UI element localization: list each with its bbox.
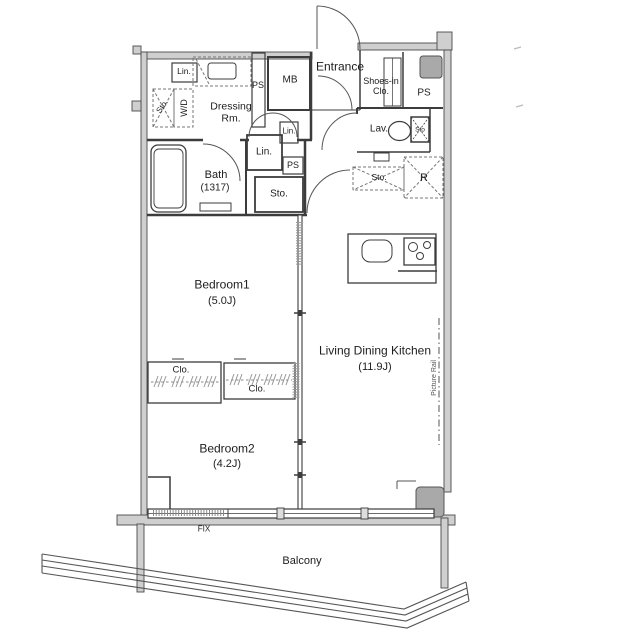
label-storage-toilet: Sto bbox=[415, 126, 425, 133]
label-shoes-in-closet: Shoes-in Clo. bbox=[359, 76, 403, 96]
stove bbox=[404, 238, 435, 265]
floorplan: Lin. PS MB Entrance Shoes-in Clo. PS Sto… bbox=[0, 0, 640, 639]
label-fix-window: FIX bbox=[198, 526, 210, 535]
label-linen-dressing: Lin. bbox=[177, 67, 191, 77]
label-bedroom1: Bedroom1 bbox=[194, 278, 249, 291]
hall-door-arc bbox=[318, 76, 352, 110]
vanity-counter bbox=[193, 57, 251, 86]
bathtub bbox=[151, 145, 186, 212]
label-linen-hall-small: Lin. bbox=[283, 128, 296, 137]
label-washer-dryer: W/D bbox=[179, 99, 189, 117]
lavatory-door-arc bbox=[322, 113, 357, 150]
label-dressing-room: Dressing Rm. bbox=[203, 101, 259, 125]
center-partition-wall bbox=[294, 215, 306, 515]
floorplan-drawing bbox=[0, 0, 640, 639]
label-entrance: Entrance bbox=[316, 60, 364, 73]
label-picture-rail: Picture Rail bbox=[431, 360, 439, 396]
label-bath-size: (1317) bbox=[201, 182, 230, 193]
toilet bbox=[389, 122, 411, 141]
label-meter-box: MB bbox=[283, 74, 298, 85]
label-linen-hall: Lin. bbox=[256, 146, 272, 157]
label-bedroom2-size: (4.2J) bbox=[213, 458, 241, 470]
label-lavatory: Lav. bbox=[370, 123, 388, 134]
balcony-railing bbox=[42, 554, 469, 628]
window-band bbox=[148, 508, 434, 519]
burner bbox=[424, 242, 431, 249]
label-storage-hall: Sto. bbox=[270, 188, 288, 199]
dimension-ticks bbox=[514, 47, 523, 107]
kitchen-fixtures bbox=[348, 234, 437, 283]
kitchen-sink bbox=[362, 240, 392, 262]
bath-step bbox=[200, 203, 231, 211]
label-ldk: Living Dining Kitchen bbox=[319, 344, 431, 357]
label-bath: Bath bbox=[205, 169, 228, 181]
label-closet-left: Clo. bbox=[173, 366, 190, 377]
ldk-door-arc bbox=[307, 170, 350, 213]
label-closet-right: Clo. bbox=[249, 385, 266, 396]
entrance-door bbox=[317, 6, 360, 49]
pillar-step-lines bbox=[397, 481, 416, 489]
toilet-control bbox=[374, 153, 389, 161]
label-storage-corridor: Sto. bbox=[371, 173, 386, 183]
label-balcony: Balcony bbox=[282, 555, 321, 567]
pillar-top-right bbox=[420, 56, 442, 78]
label-bedroom2: Bedroom2 bbox=[199, 442, 254, 455]
label-bedroom1-size: (5.0J) bbox=[208, 295, 236, 307]
label-pipe-space-entry: PS bbox=[417, 87, 430, 98]
burner bbox=[417, 253, 424, 260]
label-pipe-space-dressing: PS bbox=[252, 80, 264, 90]
label-refrigerator: R bbox=[420, 172, 428, 184]
label-ldk-size: (11.9J) bbox=[358, 361, 391, 373]
label-pipe-space-hall: PS bbox=[287, 160, 299, 170]
vanity-basin bbox=[208, 63, 236, 79]
burner bbox=[409, 243, 418, 252]
